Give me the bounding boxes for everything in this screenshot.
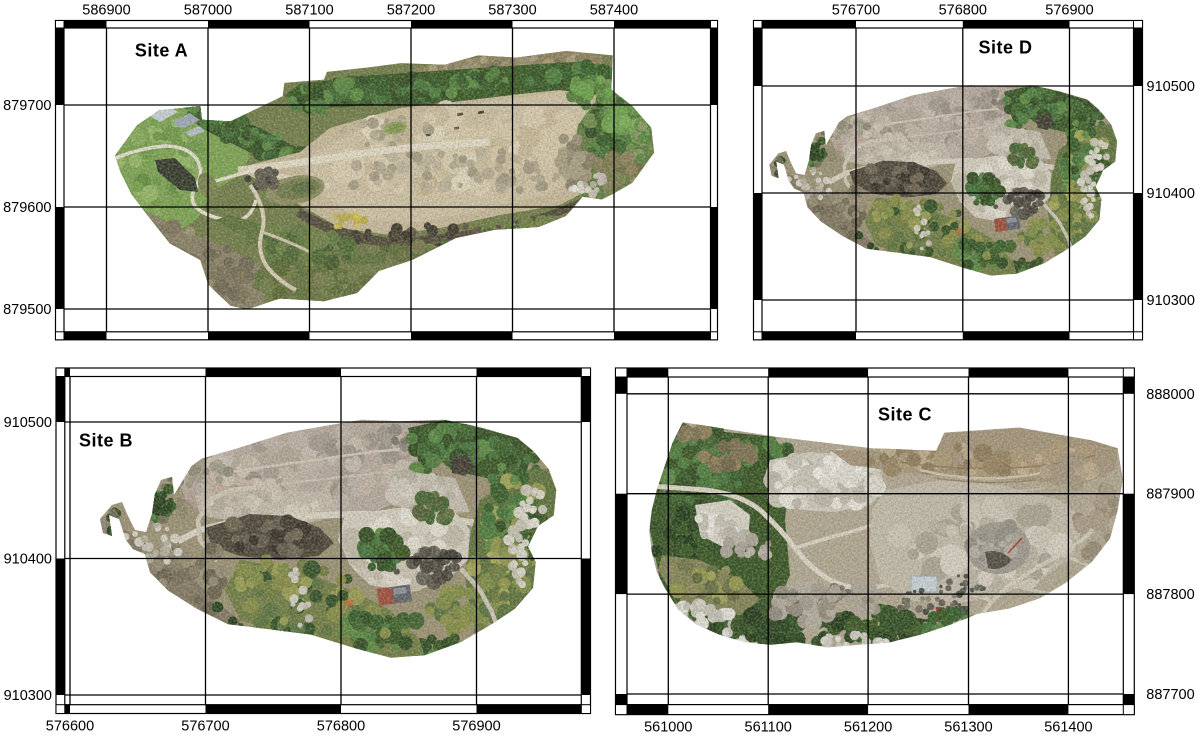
svg-text:576900: 576900 <box>1045 3 1093 19</box>
svg-text:879600: 879600 <box>3 200 51 216</box>
svg-text:576600: 576600 <box>46 719 94 735</box>
svg-text:888000: 888000 <box>1146 387 1194 403</box>
svg-text:910300: 910300 <box>1147 293 1195 309</box>
svg-text:576700: 576700 <box>832 3 880 19</box>
svg-text:576700: 576700 <box>181 719 229 735</box>
svg-text:561400: 561400 <box>1044 720 1092 736</box>
svg-text:Site B: Site B <box>79 431 133 451</box>
svg-text:887900: 887900 <box>1146 487 1194 503</box>
svg-text:561100: 561100 <box>745 720 792 736</box>
svg-text:576900: 576900 <box>452 719 500 735</box>
svg-text:587300: 587300 <box>488 3 536 19</box>
svg-text:561000: 561000 <box>644 720 692 736</box>
svg-text:561200: 561200 <box>844 720 892 736</box>
svg-text:Site D: Site D <box>978 38 1032 58</box>
svg-text:561300: 561300 <box>944 720 992 736</box>
svg-text:910400: 910400 <box>1147 186 1195 202</box>
svg-text:587200: 587200 <box>387 3 435 19</box>
svg-text:Site C: Site C <box>878 405 932 425</box>
svg-text:586900: 586900 <box>82 3 130 19</box>
svg-text:587100: 587100 <box>285 3 333 19</box>
svg-text:576800: 576800 <box>939 3 987 19</box>
svg-text:910500: 910500 <box>4 415 52 431</box>
svg-text:910400: 910400 <box>4 552 52 568</box>
svg-text:910500: 910500 <box>1147 79 1195 95</box>
svg-text:587400: 587400 <box>590 3 638 19</box>
svg-text:576800: 576800 <box>317 719 365 735</box>
svg-text:587000: 587000 <box>184 3 232 19</box>
svg-text:879700: 879700 <box>3 98 51 114</box>
svg-text:887700: 887700 <box>1146 687 1194 703</box>
svg-text:910300: 910300 <box>4 688 52 704</box>
svg-text:879500: 879500 <box>3 302 51 318</box>
svg-text:887800: 887800 <box>1146 587 1194 603</box>
svg-text:Site A: Site A <box>135 41 188 61</box>
